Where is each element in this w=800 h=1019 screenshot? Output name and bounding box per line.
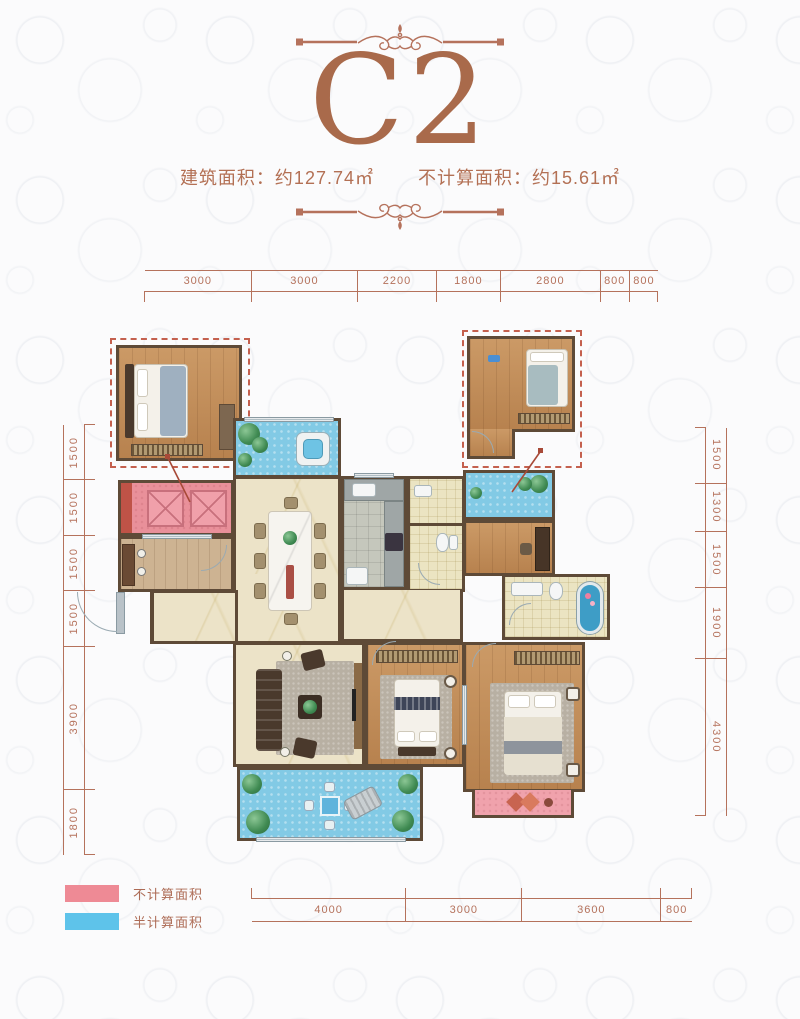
- dining-room: [233, 476, 341, 644]
- dimension-value: 1800: [454, 275, 482, 287]
- shoe-cabinet: [122, 544, 135, 586]
- table-plant: [283, 531, 297, 545]
- dimension-segment-bottom: 3600: [521, 899, 660, 921]
- table-plant: [303, 700, 317, 714]
- dining-chair: [314, 553, 326, 569]
- legend: 不计算面积半计算面积: [65, 884, 203, 931]
- kitchen: [341, 476, 407, 590]
- dimension-segment-top: 800: [600, 271, 629, 291]
- dimension-band-right: 15001300150019004300: [705, 428, 727, 816]
- plant: [398, 774, 418, 794]
- flower-petals: [590, 601, 595, 606]
- partition-wall: [410, 523, 462, 526]
- refrigerator: [346, 567, 368, 585]
- elevator-zone-excluded: [118, 480, 234, 536]
- dimension-value: 4300: [710, 721, 722, 753]
- dimension-segment-left: 1500: [64, 479, 84, 534]
- plant: [392, 810, 414, 832]
- dimension-value: 1500: [710, 439, 722, 471]
- unit-title: C2: [0, 36, 800, 166]
- dimension-band-bottom: 400030003600800: [252, 898, 692, 922]
- plant: [252, 437, 268, 453]
- dining-chair: [254, 523, 266, 539]
- dimension-value: 1300: [710, 491, 722, 523]
- dimension-value: 1900: [710, 607, 722, 639]
- window: [462, 685, 467, 745]
- door-arc: [472, 643, 496, 667]
- cabinet-knob: [137, 549, 146, 558]
- balcony-bottom: [237, 767, 423, 841]
- tv-screen: [352, 689, 356, 721]
- dimension-segment-right: 1500: [706, 428, 726, 483]
- bedroom-second: [365, 642, 465, 767]
- nightstand: [444, 675, 457, 688]
- dimension-value: 1500: [68, 602, 80, 634]
- deco-pot: [544, 798, 553, 807]
- dimension-segment-left: 3900: [64, 646, 84, 789]
- bed-pillow: [508, 695, 530, 708]
- bathroom-middle: [407, 476, 465, 592]
- dimension-band-left: 150015001500150039001800: [63, 425, 85, 855]
- dining-chair: [314, 523, 326, 539]
- side-table: [280, 747, 290, 757]
- plant: [238, 453, 252, 467]
- patio-chair: [304, 800, 314, 811]
- nightstand: [566, 763, 580, 777]
- dining-chair: [254, 553, 266, 569]
- dimension-value: 800: [633, 275, 654, 287]
- plant: [470, 487, 482, 499]
- bed-runner: [504, 741, 562, 754]
- dimension-value: 1500: [68, 547, 80, 579]
- bathroom-right: [502, 574, 610, 640]
- legend-item: 不计算面积: [65, 884, 203, 903]
- window: [256, 837, 406, 842]
- detail-bedroom-upper-right-entry: [467, 429, 515, 459]
- bed-pillow: [534, 695, 556, 708]
- floor-plan: [110, 330, 690, 875]
- bed-headboard: [398, 747, 436, 756]
- detail-bedroom-upper-right: [467, 336, 575, 432]
- dimension-value: 4000: [314, 904, 342, 916]
- toilet: [549, 582, 563, 600]
- study-room: [463, 520, 555, 576]
- dimension-segment-left: 1500: [64, 535, 84, 590]
- built-area-text: 建筑面积：约127.74㎡: [180, 164, 374, 190]
- flower-petals: [585, 593, 591, 599]
- elevator-icon: [190, 490, 227, 527]
- elevator-shaft-wall: [121, 483, 132, 533]
- nightstand: [566, 687, 580, 701]
- living-room: [233, 642, 365, 767]
- dimension-value: 3000: [290, 275, 318, 287]
- patio-chair: [324, 782, 335, 792]
- cabinet-knob: [137, 567, 146, 576]
- bed-runner: [394, 697, 440, 710]
- entrance-door-leaf: [116, 592, 125, 634]
- side-table: [282, 651, 292, 661]
- bedroom-master: [463, 642, 585, 792]
- balcony-master-excluded: [472, 790, 574, 818]
- dimension-segment-top: 800: [629, 271, 658, 291]
- dimension-segment-right: 4300: [706, 658, 726, 816]
- dimension-segment-left: 1800: [64, 789, 84, 855]
- dimension-segment-bottom: 4000: [252, 899, 405, 921]
- dimension-segment-left: 1500: [64, 425, 84, 479]
- plant: [518, 477, 532, 491]
- dining-chair: [284, 613, 298, 625]
- dimension-segment-top: 1800: [436, 271, 500, 291]
- dimension-segment-right: 1300: [706, 483, 726, 532]
- balcony-right: [463, 470, 555, 520]
- armchair: [292, 737, 317, 759]
- bed-pillow: [530, 352, 564, 362]
- door-arc: [418, 563, 440, 585]
- dimension-value: 3600: [577, 904, 605, 916]
- wardrobe: [518, 413, 570, 424]
- dimension-value: 1500: [68, 436, 80, 468]
- toilet-tank: [449, 535, 458, 550]
- dimension-segment-top: 2200: [357, 271, 435, 291]
- dimension-value: 1500: [710, 544, 722, 576]
- desk: [535, 527, 550, 571]
- legend-swatch: [65, 885, 119, 902]
- dimension-segment-top: 3000: [251, 271, 358, 291]
- shower-tray: [414, 485, 432, 497]
- dimension-value: 800: [666, 904, 687, 916]
- window: [142, 534, 212, 539]
- ornament-divider-bottom: [295, 192, 505, 232]
- dimension-band-top: 30003000220018002800800800: [145, 270, 658, 292]
- area-summary: 建筑面积：约127.74㎡ 不计算面积：约15.61㎡: [0, 164, 800, 190]
- balcony-top: [233, 418, 341, 478]
- dimension-value: 1800: [68, 806, 80, 838]
- dimension-value: 800: [604, 275, 625, 287]
- dimension-segment-top: 3000: [145, 271, 251, 291]
- bed-pillow: [419, 731, 437, 742]
- legend-label: 不计算面积: [133, 884, 203, 903]
- dining-chair: [284, 497, 298, 509]
- deco-rug: [520, 792, 540, 812]
- excluded-area-text: 不计算面积：约15.61㎡: [418, 164, 620, 190]
- legend-label: 半计算面积: [133, 912, 203, 931]
- stove-cooktop: [385, 533, 403, 551]
- bed-pillow: [397, 731, 415, 742]
- hallway-entry: [150, 590, 238, 644]
- plant: [530, 475, 548, 493]
- toilet: [436, 533, 449, 552]
- nightstand: [444, 747, 457, 760]
- dining-chair: [254, 583, 266, 599]
- legend-swatch: [65, 913, 119, 930]
- dimension-value: 3000: [450, 904, 478, 916]
- hallway-bedrooms: [341, 590, 463, 642]
- bed-headboard: [125, 364, 134, 438]
- legend-item: 半计算面积: [65, 912, 203, 931]
- door-arc: [509, 603, 531, 625]
- patio-chair: [324, 820, 335, 830]
- wardrobe: [514, 651, 580, 665]
- plant: [246, 810, 270, 834]
- entry-corridor: [118, 536, 234, 592]
- desk-chair: [520, 543, 532, 555]
- plant: [242, 774, 262, 794]
- bathtub: [577, 582, 603, 634]
- dimension-segment-bottom: 800: [660, 899, 692, 921]
- floorplan-page: C2 建筑面积：约127.74㎡ 不计算面积：约15.61㎡ 300030002…: [0, 0, 800, 1019]
- toy-car: [488, 355, 500, 362]
- dimension-value: 3000: [184, 275, 212, 287]
- bed-blanket: [160, 366, 186, 436]
- window: [244, 417, 334, 422]
- dining-chair: [314, 583, 326, 599]
- dimension-segment-top: 2800: [500, 271, 600, 291]
- dimension-value: 2800: [536, 275, 564, 287]
- bed-pillow: [137, 369, 148, 397]
- door-arc: [201, 545, 227, 571]
- dimension-value: 2200: [383, 275, 411, 287]
- dimension-segment-bottom: 3000: [405, 899, 521, 921]
- window: [354, 473, 394, 478]
- door-arc: [372, 641, 396, 665]
- double-sink: [511, 582, 543, 596]
- table-runner: [286, 565, 294, 599]
- detail-bedroom-upper-left: [116, 345, 242, 461]
- elevator-icon: [147, 490, 184, 527]
- patio-table: [320, 796, 340, 816]
- lounge-chair: [343, 785, 383, 820]
- flourish-icon: [295, 192, 505, 232]
- sofa: [256, 669, 282, 751]
- dimension-value: 3900: [68, 702, 80, 734]
- bed-blanket: [528, 365, 558, 405]
- dimension-segment-right: 1900: [706, 587, 726, 657]
- bed-pillow: [137, 403, 148, 431]
- door-arc: [472, 431, 494, 453]
- dimension-segment-right: 1500: [706, 531, 726, 587]
- dimension-value: 1500: [68, 491, 80, 523]
- jacuzzi-tub: [296, 432, 330, 466]
- wardrobe: [131, 444, 203, 456]
- kitchen-sink: [352, 483, 376, 497]
